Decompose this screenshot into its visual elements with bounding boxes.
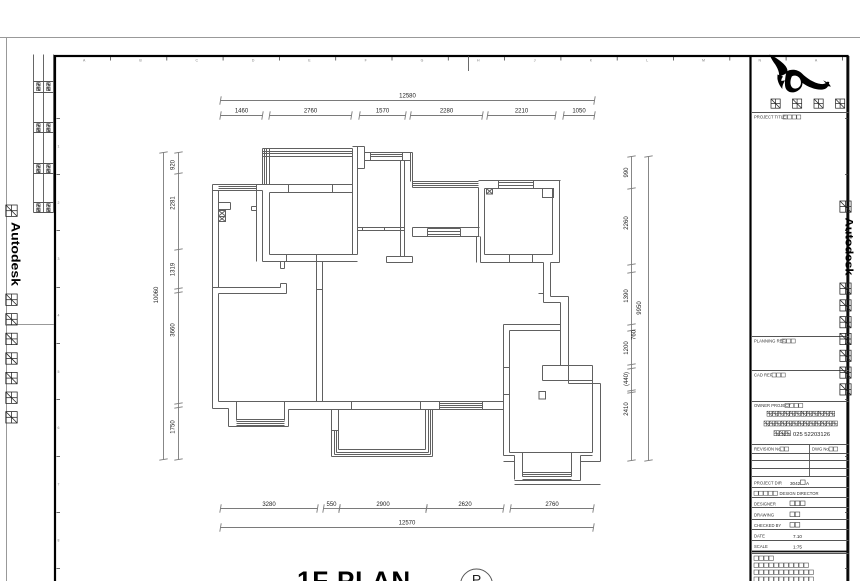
svg-text:2410: 2410 bbox=[624, 402, 630, 416]
svg-text:1319: 1319 bbox=[171, 262, 177, 276]
svg-text:2760: 2760 bbox=[545, 502, 559, 508]
svg-text:2760: 2760 bbox=[304, 109, 318, 115]
svg-text:(440): (440) bbox=[624, 372, 630, 386]
svg-text:1:75: 1:75 bbox=[793, 545, 802, 550]
svg-text:1460: 1460 bbox=[235, 109, 249, 115]
svg-text:7: 7 bbox=[58, 482, 60, 486]
svg-text:Autodesk: Autodesk bbox=[842, 218, 854, 277]
svg-text:4: 4 bbox=[58, 314, 60, 318]
svg-text:1570: 1570 bbox=[376, 109, 390, 115]
svg-text:760: 760 bbox=[632, 329, 638, 340]
svg-text:DRAWING: DRAWING bbox=[754, 513, 774, 518]
svg-text:550: 550 bbox=[326, 502, 337, 508]
svg-text:1F PLAN: 1F PLAN bbox=[297, 566, 411, 581]
svg-text:6: 6 bbox=[58, 426, 60, 430]
svg-text:REVISION No.: REVISION No. bbox=[754, 447, 782, 452]
svg-text:2900: 2900 bbox=[376, 502, 390, 508]
svg-text:2620: 2620 bbox=[458, 502, 472, 508]
svg-text:1: 1 bbox=[58, 145, 60, 149]
svg-text:J: J bbox=[534, 59, 536, 63]
svg-text:M: M bbox=[702, 59, 705, 63]
svg-text:DESIGNER: DESIGNER bbox=[754, 502, 776, 507]
svg-text:2280: 2280 bbox=[440, 109, 454, 115]
svg-text:1750: 1750 bbox=[171, 420, 177, 434]
svg-text:1200: 1200 bbox=[624, 341, 630, 355]
svg-text:10060: 10060 bbox=[154, 286, 160, 303]
svg-text:2260: 2260 bbox=[624, 216, 630, 230]
svg-text:2: 2 bbox=[58, 201, 60, 205]
svg-text:L: L bbox=[646, 59, 648, 63]
svg-text:PLANNING REF.: PLANNING REF. bbox=[754, 339, 786, 344]
svg-text:5: 5 bbox=[58, 370, 60, 374]
svg-text:DWG No.: DWG No. bbox=[812, 447, 830, 452]
svg-text:CAD REF.: CAD REF. bbox=[754, 373, 773, 378]
svg-text:3: 3 bbox=[58, 257, 60, 261]
svg-text:3280: 3280 bbox=[262, 502, 276, 508]
svg-text:P: P bbox=[472, 572, 481, 581]
svg-text:1390: 1390 bbox=[624, 289, 630, 303]
svg-text:9950: 9950 bbox=[637, 301, 643, 315]
svg-text:PROJECT TITLE: PROJECT TITLE bbox=[754, 115, 786, 120]
svg-text:G: G bbox=[421, 59, 424, 63]
svg-text:12580: 12580 bbox=[399, 94, 416, 100]
svg-text:8: 8 bbox=[58, 539, 60, 543]
svg-text:DATE: DATE bbox=[754, 534, 765, 539]
svg-text:920: 920 bbox=[171, 159, 177, 170]
svg-text:3660: 3660 bbox=[171, 323, 177, 337]
svg-text:2281: 2281 bbox=[171, 196, 177, 210]
svg-text:Autodesk: Autodesk bbox=[9, 222, 21, 287]
svg-text:CHECKED BY: CHECKED BY bbox=[754, 523, 781, 528]
svg-text:F: F bbox=[365, 59, 367, 63]
svg-text:1050: 1050 bbox=[572, 109, 586, 115]
svg-text:990: 990 bbox=[624, 167, 630, 178]
svg-text:2210: 2210 bbox=[515, 109, 529, 115]
svg-text:PROJECT DIR: PROJECT DIR bbox=[754, 481, 782, 486]
svg-text:3042: 3042 bbox=[790, 481, 801, 486]
svg-text:12570: 12570 bbox=[399, 521, 416, 527]
svg-text:DESIGN DIRECTOR: DESIGN DIRECTOR bbox=[780, 491, 819, 496]
svg-text:SCALE: SCALE bbox=[754, 544, 768, 549]
svg-text:025 52203126: 025 52203126 bbox=[793, 432, 830, 438]
svg-text:7.10: 7.10 bbox=[793, 534, 802, 539]
